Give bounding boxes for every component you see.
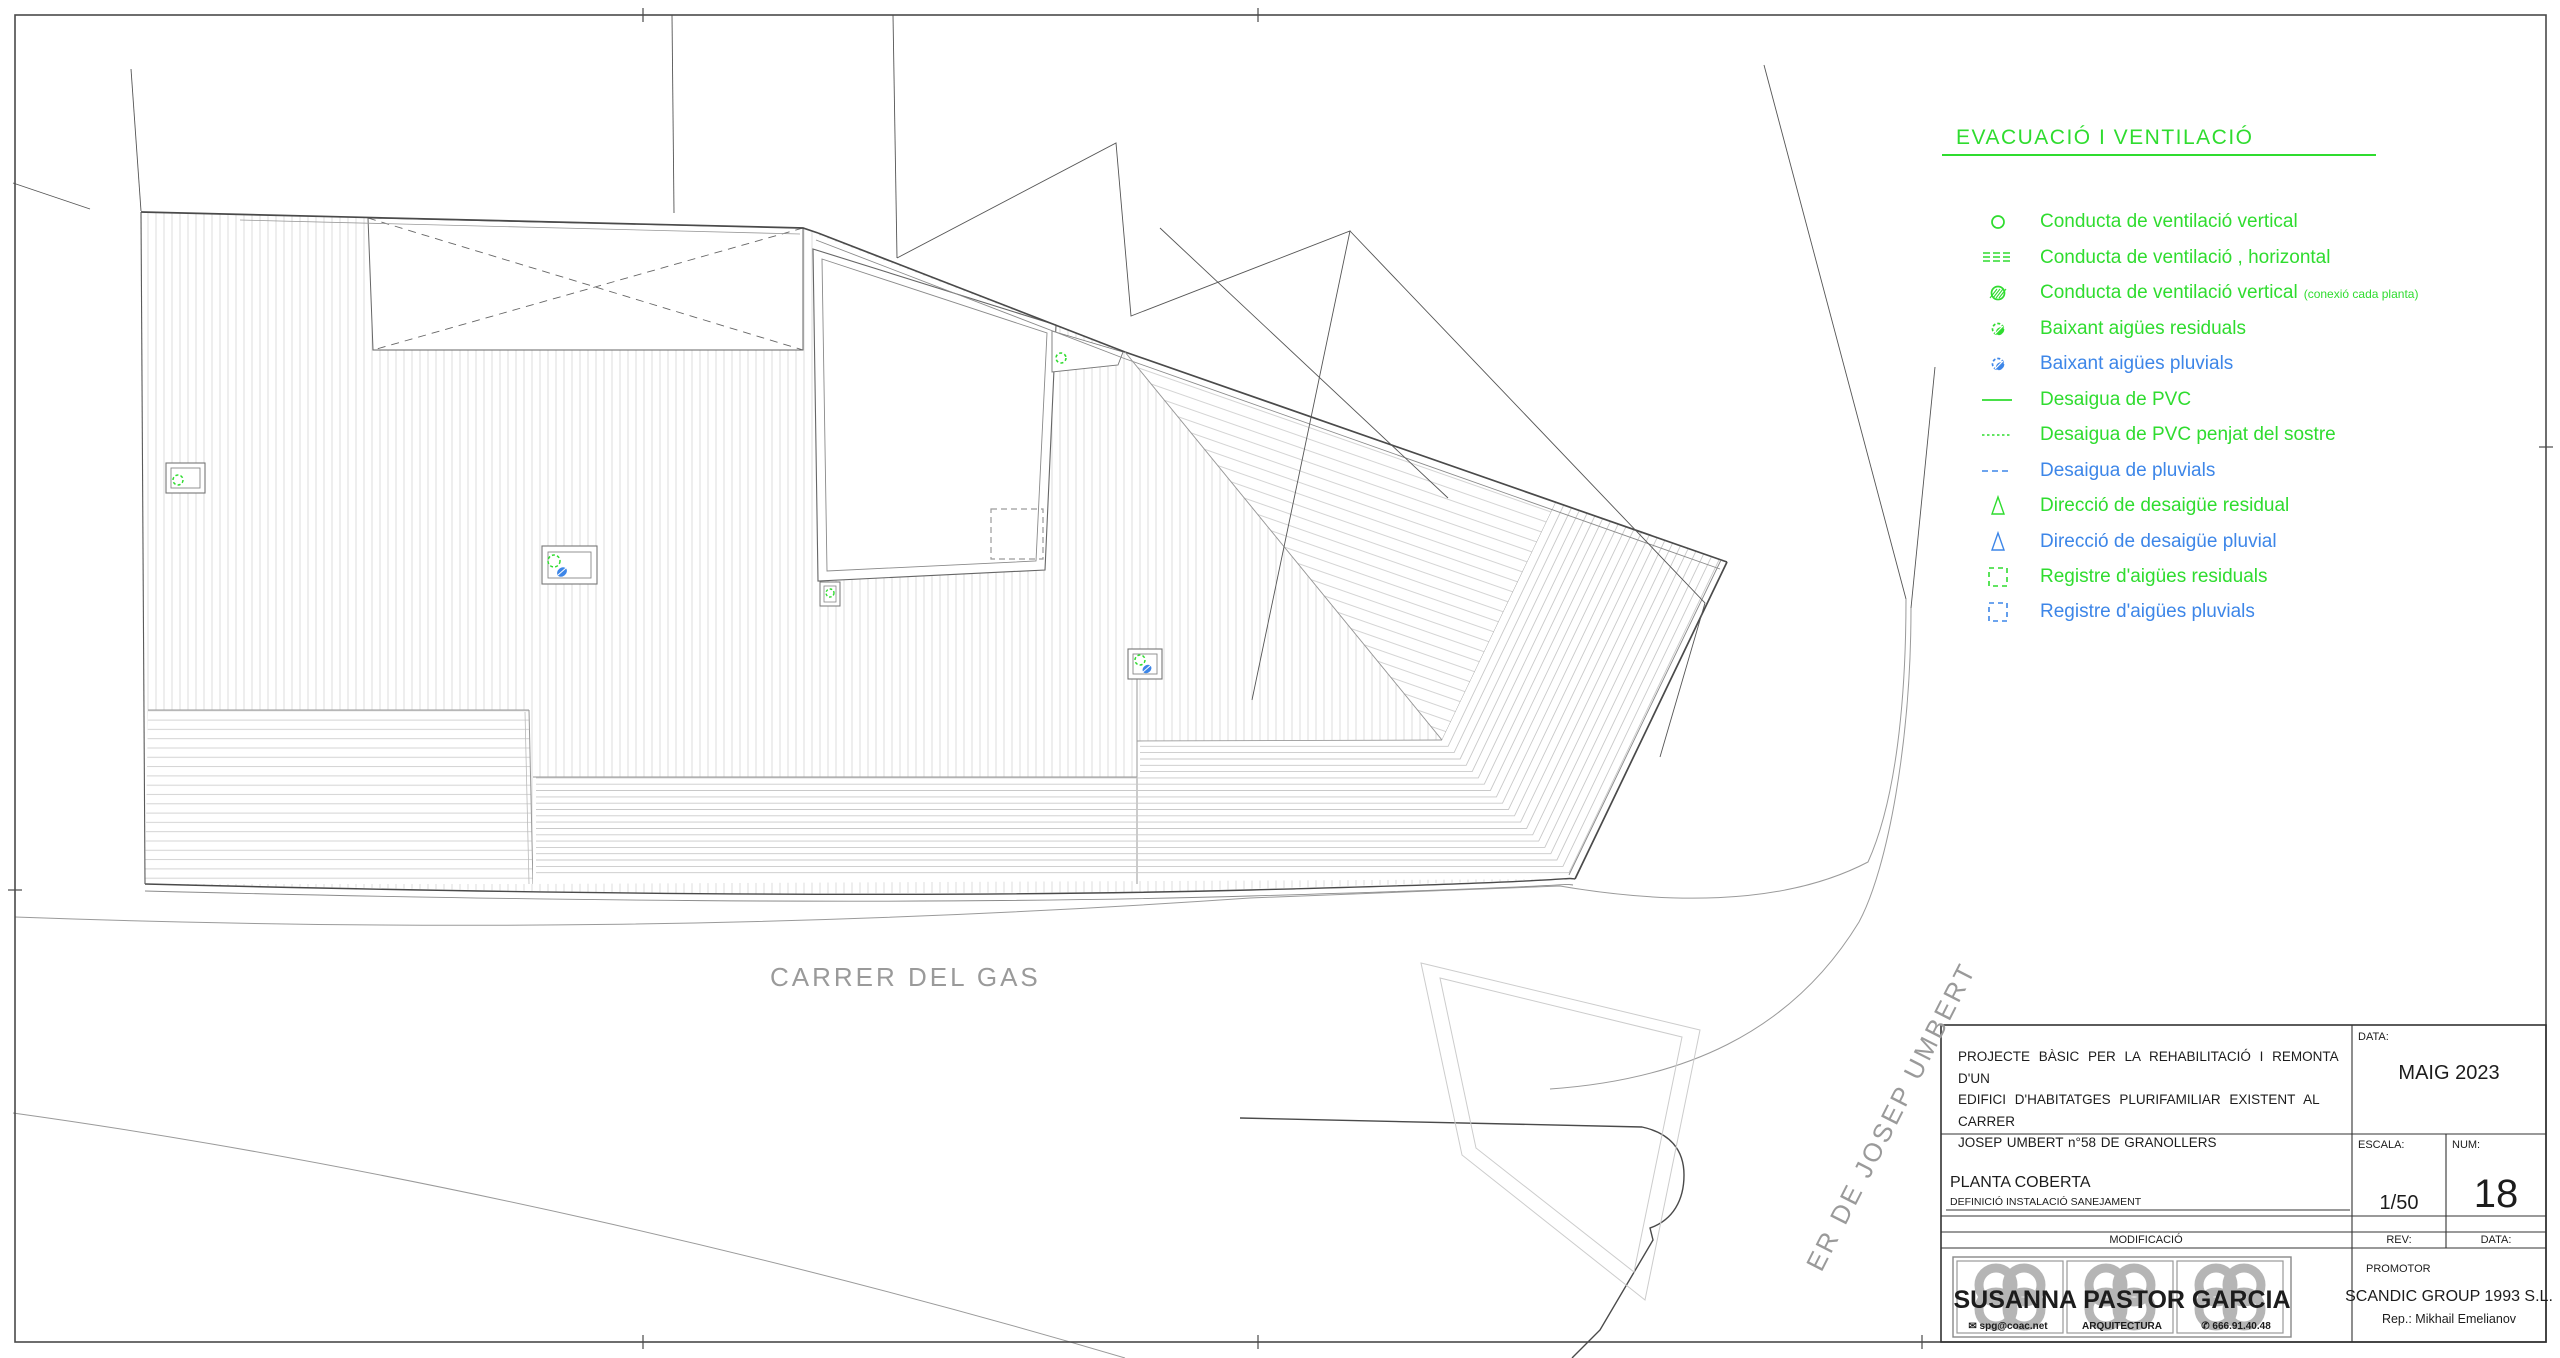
architect-phone: ✆ 666.91.40.48 — [2201, 1321, 2271, 1332]
legend-item-label: Conducta de ventilació vertical — [2040, 211, 2298, 233]
neighbour-plot-umbert — [1421, 963, 1700, 1300]
promotor-name: SCANDIC GROUP 1993 S.L. — [2345, 1288, 2553, 1306]
architect-email: ✉ spg@coac.net — [1968, 1321, 2047, 1332]
legend-item-label: Direcció de desaigüe residual — [2040, 495, 2289, 517]
circle-hatched-icon — [1980, 281, 2016, 305]
legend-item-label: Conducta de ventilació vertical(conexió … — [2040, 282, 2418, 304]
data-value: MAIG 2023 — [2398, 1062, 2499, 1085]
modificacio-label: MODIFICACIÓ — [2109, 1234, 2182, 1246]
project-description: PROJECTE BÀSIC PER LA REHABILITACIÓ I RE… — [1958, 1046, 2342, 1154]
fine-dashed-line-icon — [1980, 423, 2016, 447]
dashed-line-icon — [1980, 459, 2016, 483]
legend-item-label: Baixant aigües pluvials — [2040, 353, 2233, 375]
legend-item-label: Baixant aigües residuals — [2040, 318, 2246, 340]
registre-symbol — [1128, 649, 1162, 679]
data2-label: DATA: — [2481, 1234, 2512, 1246]
legend-item-suffix: (conexió cada planta) — [2304, 287, 2419, 301]
registre-symbol — [820, 582, 840, 606]
num-label: NUM: — [2452, 1139, 2480, 1151]
legend-item-label: Registre d'aigües residuals — [2040, 566, 2268, 588]
promotor-rep: Rep.: Mikhail Emelianov — [2382, 1312, 2516, 1326]
architect-logo-name: SUSANNA PASTOR GARCIA — [1953, 1286, 2290, 1315]
plan-title: PLANTA COBERTA — [1950, 1174, 2090, 1192]
legend-item-label: Registre d'aigües pluvials — [2040, 601, 2255, 623]
escala-label: ESCALA: — [2358, 1139, 2404, 1151]
terrace-band-upper — [145, 710, 533, 884]
triangle-outline-icon — [1980, 494, 2016, 518]
drain-drop-icon — [1980, 317, 2016, 341]
rev-label: REV: — [2386, 1234, 2411, 1246]
triangle-outline-icon — [1980, 530, 2016, 554]
street-label-gas: CARRER DEL GAS — [770, 962, 1041, 993]
plan-subtitle: DEFINICIÓ INSTALACIÓ SANEJAMENT — [1950, 1196, 2141, 1208]
escala-value: 1/50 — [2380, 1192, 2419, 1215]
drain-drop-icon — [1980, 352, 2016, 376]
num-value: 18 — [2474, 1172, 2519, 1217]
solid-line-icon — [1980, 388, 2016, 412]
architect-brand: ARQUITECTURA — [2082, 1321, 2162, 1332]
triple-dashed-line-icon — [1980, 246, 2016, 270]
roof-xbox — [368, 218, 803, 350]
circle-outline-icon — [1980, 210, 2016, 234]
skylight-courtyard — [813, 235, 1056, 581]
registre-symbol — [166, 463, 205, 493]
legend-title: EVACUACIÓ I VENTILACIÓ — [1942, 126, 2376, 156]
legend-item-label: Direcció de desaigüe pluvial — [2040, 531, 2277, 553]
promotor-label: PROMOTOR — [2366, 1263, 2431, 1275]
legend-item-label: Desaigua de PVC — [2040, 389, 2191, 411]
dashed-square-icon — [1980, 600, 2016, 624]
legend-item-label: Desaigua de pluvials — [2040, 460, 2215, 482]
data-label: DATA: — [2358, 1031, 2389, 1043]
dashed-square-icon — [1980, 565, 2016, 589]
legend-item-label: Desaigua de PVC penjat del sostre — [2040, 424, 2336, 446]
registre-symbol — [542, 546, 597, 584]
roof-plan-drawing — [0, 0, 2560, 1358]
legend-item-label: Conducta de ventilació , horizontal — [2040, 247, 2330, 269]
